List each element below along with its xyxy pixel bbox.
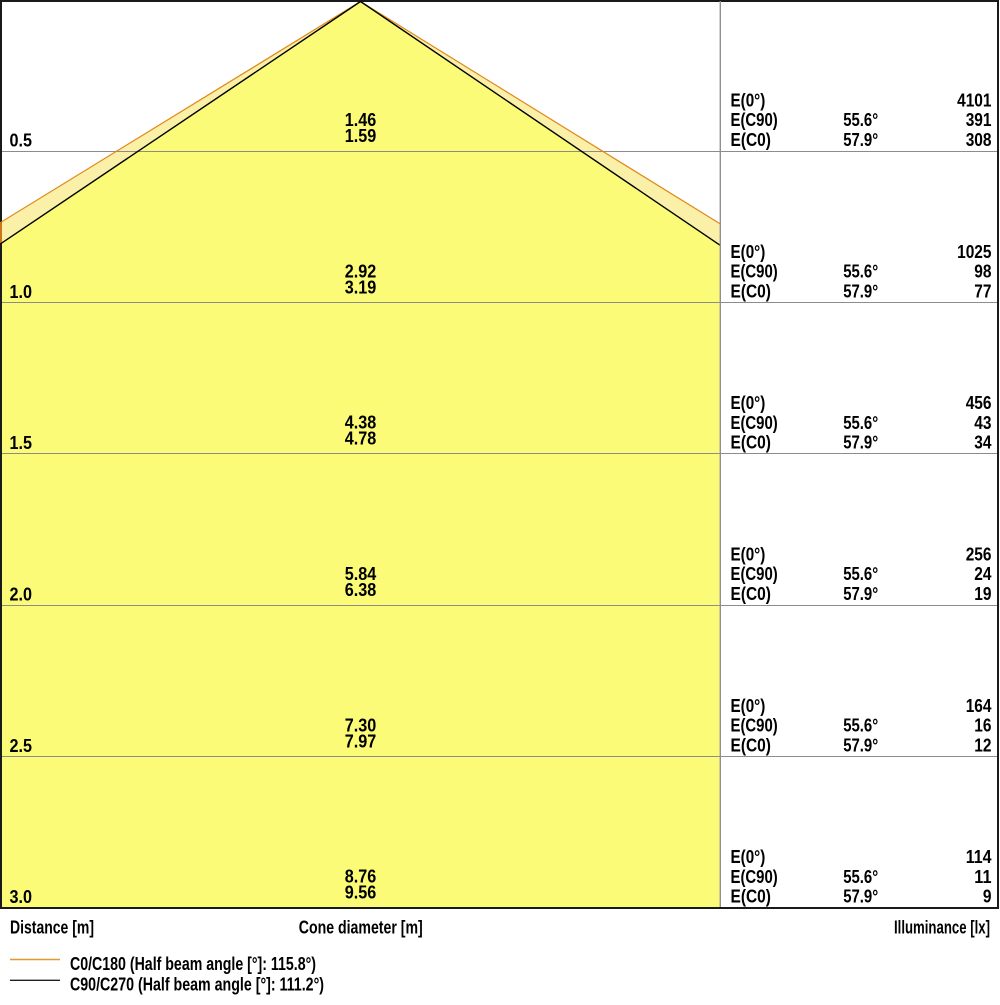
svg-text:0.5: 0.5 (10, 131, 33, 151)
svg-text:77: 77 (974, 281, 991, 301)
svg-text:1.59: 1.59 (345, 126, 377, 146)
svg-text:256: 256 (966, 545, 992, 565)
svg-text:43: 43 (974, 413, 991, 433)
svg-text:1.0: 1.0 (10, 282, 33, 302)
svg-text:24: 24 (974, 564, 991, 584)
svg-text:55.6°: 55.6° (843, 716, 878, 736)
svg-text:11: 11 (974, 867, 991, 887)
svg-text:57.9°: 57.9° (843, 887, 878, 907)
svg-text:C90/C270 (Half beam angle [°]:: C90/C270 (Half beam angle [°]: 111.2°) (70, 974, 324, 994)
svg-text:391: 391 (966, 110, 992, 130)
svg-text:3.0: 3.0 (10, 887, 33, 907)
svg-text:E(C0): E(C0) (731, 281, 771, 301)
svg-text:6.38: 6.38 (345, 580, 377, 600)
svg-text:4101: 4101 (957, 91, 991, 111)
svg-text:55.6°: 55.6° (843, 110, 878, 130)
svg-text:E(0°): E(0°) (731, 242, 766, 262)
svg-text:12: 12 (974, 735, 991, 755)
svg-text:2.0: 2.0 (10, 585, 33, 605)
svg-text:55.6°: 55.6° (843, 262, 878, 282)
svg-text:Distance [m]: Distance [m] (10, 918, 94, 938)
svg-text:57.9°: 57.9° (843, 735, 878, 755)
svg-text:55.6°: 55.6° (843, 413, 878, 433)
svg-text:16: 16 (974, 716, 991, 736)
svg-text:57.9°: 57.9° (843, 281, 878, 301)
svg-text:E(C90): E(C90) (731, 110, 778, 130)
svg-text:57.9°: 57.9° (843, 584, 878, 604)
svg-text:E(0°): E(0°) (731, 393, 766, 413)
svg-text:2.5: 2.5 (10, 736, 33, 756)
svg-text:E(C90): E(C90) (731, 716, 778, 736)
svg-text:E(C90): E(C90) (731, 413, 778, 433)
svg-text:Illuminance [lx]: Illuminance [lx] (894, 918, 990, 938)
svg-text:E(0°): E(0°) (731, 696, 766, 716)
svg-text:114: 114 (966, 847, 992, 867)
svg-text:19: 19 (974, 584, 991, 604)
svg-text:57.9°: 57.9° (843, 130, 878, 150)
svg-text:34: 34 (974, 433, 991, 453)
svg-text:7.97: 7.97 (345, 731, 377, 751)
svg-text:55.6°: 55.6° (843, 867, 878, 887)
svg-text:E(0°): E(0°) (731, 545, 766, 565)
svg-text:3.19: 3.19 (345, 277, 377, 297)
svg-text:E(C90): E(C90) (731, 262, 778, 282)
svg-text:E(C0): E(C0) (731, 130, 771, 150)
svg-text:E(C0): E(C0) (731, 887, 771, 907)
svg-text:E(C0): E(C0) (731, 584, 771, 604)
svg-text:456: 456 (966, 393, 992, 413)
svg-text:164: 164 (966, 696, 992, 716)
svg-text:55.6°: 55.6° (843, 564, 878, 584)
svg-text:9.56: 9.56 (345, 883, 377, 903)
svg-text:4.78: 4.78 (345, 429, 377, 449)
svg-text:C0/C180 (Half beam angle [°]:: C0/C180 (Half beam angle [°]: 115.8°) (70, 954, 316, 974)
svg-text:E(C90): E(C90) (731, 564, 778, 584)
svg-text:308: 308 (966, 130, 992, 150)
svg-text:E(C90): E(C90) (731, 867, 778, 887)
svg-text:98: 98 (974, 262, 991, 282)
svg-text:1.5: 1.5 (10, 433, 33, 453)
svg-text:E(C0): E(C0) (731, 433, 771, 453)
svg-text:1025: 1025 (957, 242, 991, 262)
svg-text:9: 9 (983, 887, 992, 907)
svg-text:57.9°: 57.9° (843, 433, 878, 453)
svg-text:Cone diameter [m]: Cone diameter [m] (299, 918, 423, 938)
svg-text:E(C0): E(C0) (731, 735, 771, 755)
svg-text:E(0°): E(0°) (731, 91, 766, 111)
svg-text:E(0°): E(0°) (731, 847, 766, 867)
